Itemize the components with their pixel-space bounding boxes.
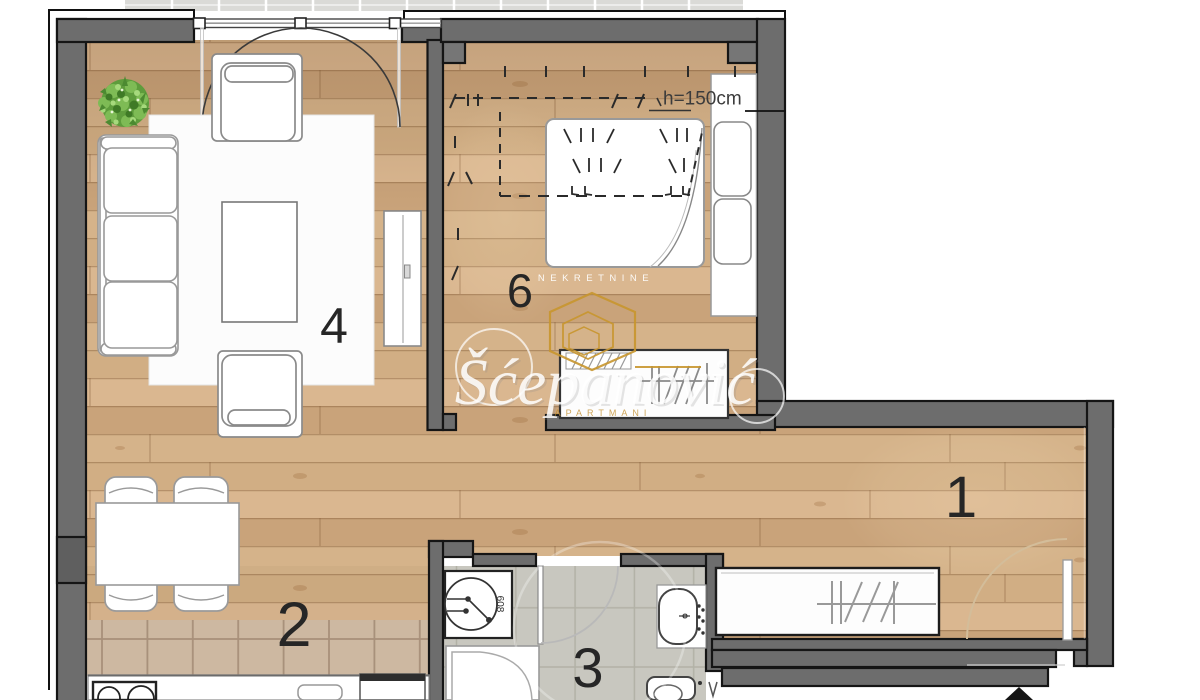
svg-text:APARTMANI: APARTMANI <box>555 408 652 418</box>
svg-text:h=150cm: h=150cm <box>663 89 742 110</box>
svg-text:4: 4 <box>320 298 348 354</box>
svg-text:2: 2 <box>276 590 311 660</box>
svg-text:NEKRETNINE: NEKRETNINE <box>538 273 654 284</box>
svg-text:608: 608 <box>494 596 505 613</box>
svg-text:3: 3 <box>572 636 603 699</box>
svg-text:6: 6 <box>507 264 533 317</box>
svg-text:1: 1 <box>945 465 977 530</box>
